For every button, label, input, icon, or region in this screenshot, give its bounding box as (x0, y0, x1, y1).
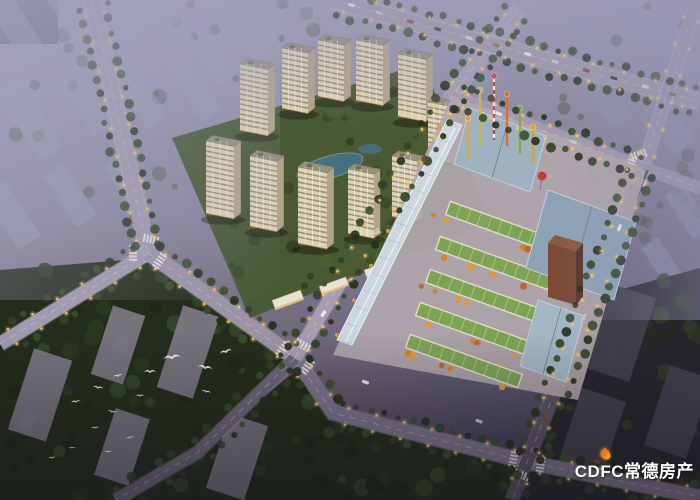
streetlight (31, 313, 34, 316)
streetlight (549, 124, 552, 127)
street-tree (321, 281, 327, 287)
street-tree (72, 311, 79, 318)
lit-window (399, 177, 401, 179)
watermark-text: CDFC常德房产 (575, 462, 694, 481)
roof-equipment (400, 153, 405, 156)
streetlight (392, 207, 395, 210)
red-balloon (538, 172, 547, 181)
street-tree (83, 302, 92, 311)
lit-window (317, 199, 319, 201)
courtyard-tree (320, 254, 333, 267)
residential-tower (292, 162, 338, 255)
street-tree (216, 317, 224, 325)
street-tree (355, 269, 362, 276)
lit-window (400, 204, 402, 206)
watermark: CDFC常德房产 (575, 457, 694, 482)
lit-window (320, 215, 322, 217)
lane-tree (444, 217, 449, 222)
pole-top-ball (530, 124, 536, 130)
street-tree (440, 133, 446, 139)
street-tree (307, 306, 313, 312)
streetlight (65, 312, 68, 315)
street-tree (257, 316, 262, 321)
streetlight (421, 128, 424, 131)
courtyard-pond-small (358, 144, 382, 154)
street-tree (418, 120, 424, 126)
street-tree (351, 230, 360, 239)
lit-window (315, 223, 317, 225)
courtyard-tree (301, 282, 308, 289)
lane-tree (520, 283, 527, 290)
street-tree (8, 316, 17, 325)
streetlight (364, 223, 367, 226)
street-tree (519, 130, 529, 140)
streetlight (40, 327, 43, 330)
street-tree (378, 180, 388, 190)
lane-tree (419, 284, 424, 289)
streetlight (378, 199, 381, 202)
street-tree (338, 257, 344, 263)
streetlight (350, 278, 353, 281)
street-banner (437, 125, 441, 129)
streetlight (407, 152, 410, 155)
street-tree (268, 321, 277, 330)
street-tree (32, 303, 41, 312)
street-tree (404, 142, 412, 150)
lane-tree (425, 322, 431, 328)
street-tree (203, 307, 210, 314)
lane-tree (467, 264, 474, 271)
lit-window (370, 201, 372, 203)
streetlight (378, 231, 381, 234)
street-tree (245, 306, 252, 313)
streetlight (516, 127, 519, 130)
streetlight (322, 325, 325, 328)
streetlight (322, 294, 325, 297)
streetlight (308, 317, 311, 320)
streetlight (434, 136, 437, 139)
street-tree (413, 134, 419, 140)
streetlight (544, 137, 547, 140)
streetlight (238, 306, 241, 309)
street-tree (341, 293, 346, 298)
street-tree (388, 219, 393, 224)
lit-window (413, 174, 415, 176)
street-tree (546, 143, 556, 153)
streetlight (203, 303, 206, 306)
lane-tree (441, 255, 447, 261)
rendering-canvas (0, 0, 700, 500)
roof-equipment (356, 166, 361, 169)
streetlight (336, 302, 339, 305)
tower-facade-shade (374, 169, 380, 238)
street-banner (369, 264, 373, 268)
street-tree (419, 171, 425, 177)
street-banner (386, 229, 390, 233)
street-tree (397, 157, 406, 166)
lane-tree (524, 246, 531, 253)
street-banner (352, 298, 356, 302)
lane-tree (490, 272, 496, 278)
tower-facade-shade (327, 167, 334, 249)
street-tree (365, 206, 373, 214)
streetlight (350, 246, 353, 249)
streetlight (571, 323, 574, 326)
roof-equipment (307, 164, 312, 167)
aerial-rendering: CDFC常德房产 (0, 0, 700, 500)
streetlight (393, 175, 396, 178)
street-tree (396, 207, 402, 213)
lane-tree (464, 300, 470, 306)
street-tree (300, 317, 306, 323)
street-tree (371, 241, 379, 249)
streetlight (262, 323, 265, 326)
street-tree (20, 311, 26, 317)
lane-tree (455, 297, 461, 303)
street-tree (505, 127, 512, 134)
street-tree (446, 119, 453, 126)
courtyard-tree (307, 273, 314, 280)
street-tree (433, 147, 439, 153)
streetlight (406, 184, 409, 187)
street-tree (400, 192, 410, 202)
street-tree (328, 319, 334, 325)
lane-tree (431, 213, 436, 218)
street-tree (59, 316, 68, 325)
street-tree (492, 121, 499, 128)
streetlight (227, 320, 230, 323)
streetlight (336, 270, 339, 273)
haze-right (560, 0, 700, 320)
lane-tree (433, 289, 438, 294)
streetlight (364, 254, 367, 257)
street-tree (531, 137, 540, 146)
courtyard-tree (346, 138, 354, 146)
